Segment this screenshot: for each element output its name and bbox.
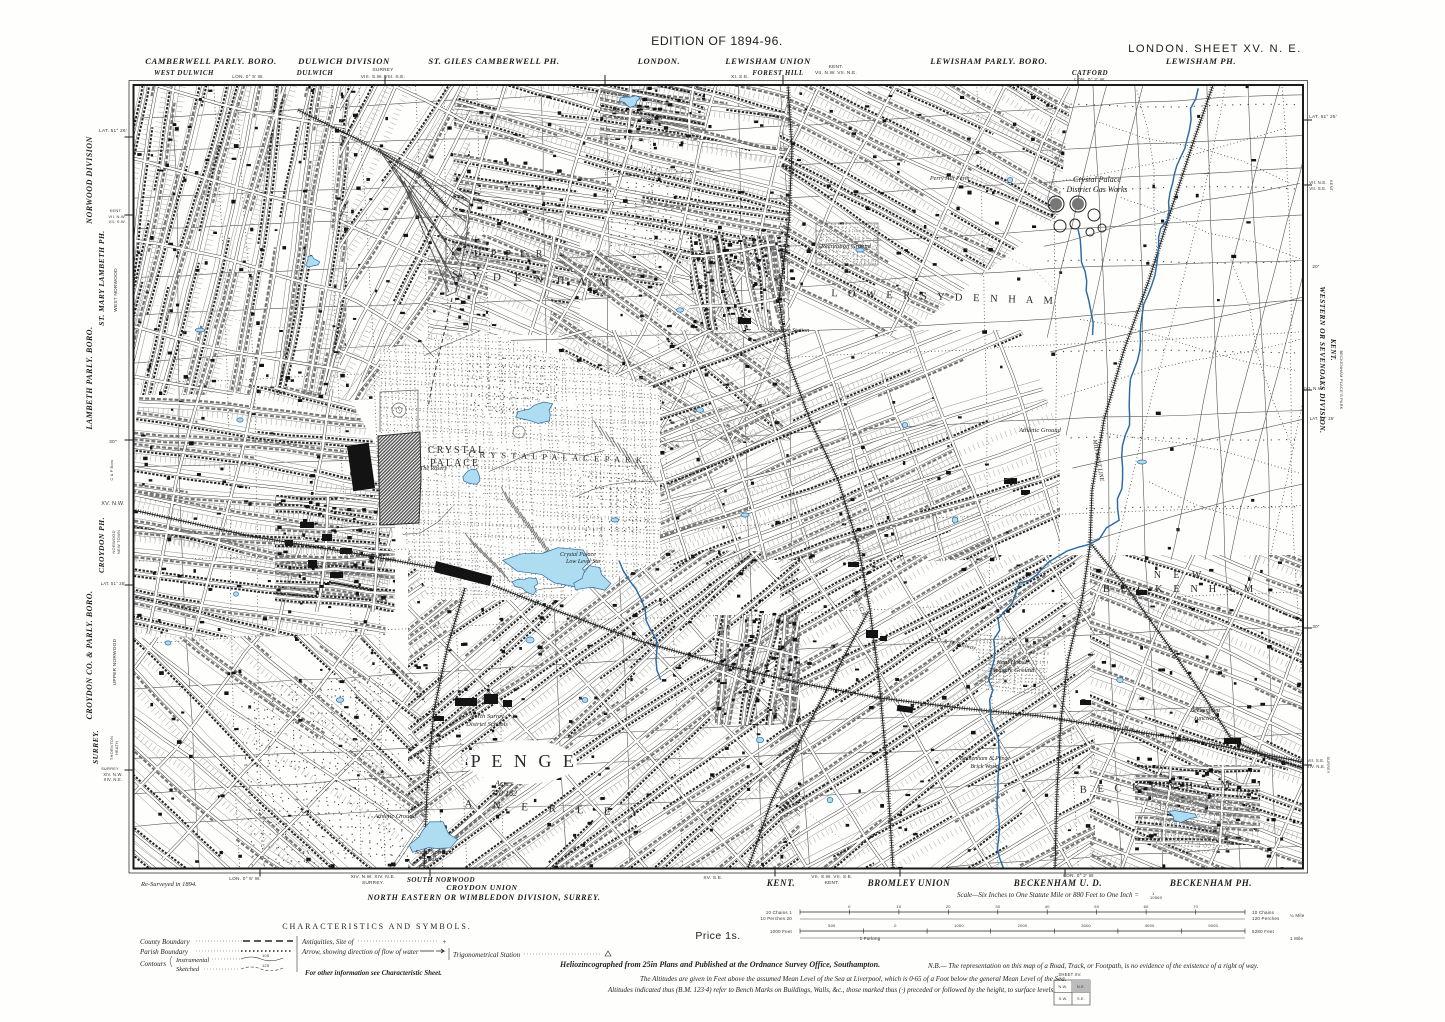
svg-text:LON. 0° 5′ W.: LON. 0° 5′ W. [229,876,261,882]
svg-text:Low Level Sta: Low Level Sta [565,559,600,565]
svg-text:District Gas Works: District Gas Works [1065,185,1127,194]
svg-text:U P P E R: U P P E R [474,249,546,260]
svg-text:NEW TOWN: NEW TOWN [116,530,121,554]
svg-text:10 Chains: 10 Chains [1252,910,1275,915]
svg-text:30″: 30″ [109,439,117,445]
svg-text:Athletic Ground: Athletic Ground [373,813,417,820]
svg-text:South Norwood: South Norwood [415,850,454,856]
svg-text:HEATH: HEATH [114,741,119,755]
svg-text:LEWISHAM UNION: LEWISHAM UNION [724,56,811,66]
svg-text:Antiquities, Site of: Antiquities, Site of [301,938,355,946]
svg-text:KENT.: KENT. [1329,180,1334,192]
svg-text:XIV. N.W. XIV. N.E.: XIV. N.W. XIV. N.E. [351,874,396,880]
svg-text:LEWISHAM PARLY. BORO.: LEWISHAM PARLY. BORO. [929,56,1048,66]
svg-text:P E N G E: P E N G E [471,751,578,771]
svg-text:30″: 30″ [1312,624,1319,629]
svg-text:For other information see: For other information see Characteristic… [305,969,442,977]
svg-text:XI. S.E.: XI. S.E. [731,74,749,80]
svg-text:LON. 0° 2′ W.: LON. 0° 2′ W. [1074,77,1106,83]
svg-text:SURREY: SURREY [1326,756,1330,773]
svg-text:Wood Ho: Wood Ho [640,116,662,122]
svg-text:DULWICH: DULWICH [296,69,334,77]
svg-text:2000: 2000 [1018,923,1028,928]
svg-text:Athletic Ground: Athletic Ground [1018,427,1062,434]
svg-text:KENT.: KENT. [1329,338,1337,361]
svg-text:0: 0 [848,904,851,909]
svg-text:LAT. 51° 26′: LAT. 51° 26′ [101,581,126,586]
svg-text:Instrumental: Instrumental [175,957,209,964]
svg-text:N E W: N E W [1154,570,1207,581]
svg-text:LON. 0° 5′ W.: LON. 0° 5′ W. [232,74,264,80]
svg-text:EDITION OF 1894-96.: EDITION OF 1894-96. [651,34,783,48]
svg-text:ST. GILES CAMBERWELL PH.: ST. GILES CAMBERWELL PH. [428,56,559,66]
svg-text:Re-Surveyed in 1894.: Re-Surveyed in 1894. [140,881,197,888]
svg-text:XV. N.W.: XV. N.W. [101,501,125,507]
svg-text:Crystal Palace: Crystal Palace [1073,175,1121,184]
svg-text:B E C K E N H A M: B E C K E N H A M [1103,584,1257,595]
svg-text:1 Furlong: 1 Furlong [860,936,881,941]
svg-text:40: 40 [1045,904,1050,909]
svg-text:100: 100 [262,953,270,958]
svg-text:CAMBERWELL PARLY. BORO.: CAMBERWELL PARLY. BORO. [145,56,277,66]
svg-text:SURREY: SURREY [101,766,119,771]
svg-text:Crystal Palace: Crystal Palace [560,552,596,558]
svg-text:Scale—Six Inches to One Statut: Scale—Six Inches to One Statute Mile or … [957,891,1139,899]
svg-text:BECKENHAM PH.: BECKENHAM PH. [1169,878,1252,888]
svg-text:WEST NORWOOD: WEST NORWOOD [113,268,119,312]
svg-text:Heliozincographed from 25in Pl: Heliozincographed from 25in Plans and Pu… [559,960,880,969]
svg-text:0: 0 [894,923,897,928]
svg-text:Kent House: Kent House [996,659,1028,666]
svg-text:VII. S.W. VII. S.E.: VII. S.W. VII. S.E. [811,874,852,880]
svg-text:Parish Boundary: Parish Boundary [139,948,189,956]
svg-text:BECKENHAM U. D.: BECKENHAM U. D. [1013,878,1103,888]
svg-text:LONDON. SHEET XV. N. E.: LONDON. SHEET XV. N. E. [1128,43,1302,55]
svg-text:NORWOOD DIVISION: NORWOOD DIVISION [85,135,94,224]
svg-text:KENT.: KENT. [110,208,122,213]
svg-text:Perry Hill Farm: Perry Hill Farm [929,176,970,182]
svg-text:VII. S.E.: VII. S.E. [1309,186,1326,191]
svg-text:4000: 4000 [1145,923,1155,928]
svg-text:N.B.— The representation on th: N.B.— The representation on this map of … [927,962,1259,970]
svg-text:VII. N.W. VII. N.E.: VII. N.W. VII. N.E. [815,70,857,76]
svg-text:10 Perches 20: 10 Perches 20 [760,916,792,921]
svg-text:NORTH EASTERN OR WIMBLEDON: NORTH EASTERN OR WIMBLEDON DIVISION, SUR… [366,893,600,902]
svg-text:VIII. S.W. VIII. S.E.: VIII. S.W. VIII. S.E. [361,74,405,80]
svg-text:120 Perches: 120 Perches [1252,916,1280,921]
svg-text:C & P Boro: C & P Boro [110,460,114,481]
svg-text:Brick Works: Brick Works [970,764,1000,770]
svg-text:LEWISHAM PH.: LEWISHAM PH. [1165,56,1236,66]
svg-text:Sydenham Station: Sydenham Station [766,328,809,334]
svg-text:1000: 1000 [954,923,964,928]
svg-text:Contours: Contours [140,960,166,968]
svg-text:WESTERN OR SEVENOAKS DIVISI: WESTERN OR SEVENOAKS DIVISION. [1318,286,1327,433]
svg-text:WEST DULWICH: WEST DULWICH [154,69,214,77]
svg-text:XV. S.E.: XV. S.E. [703,875,722,881]
svg-text:Beckenham: Beckenham [1190,707,1220,714]
svg-text:LONDON.: LONDON. [637,56,681,66]
svg-text:KENT.: KENT. [829,64,844,70]
svg-text:North Surrey: North Surrey [469,713,504,720]
svg-text:VII. S.W.: VII. S.W. [109,219,126,224]
svg-text:BROMLEY UNION: BROMLEY UNION [867,878,951,888]
svg-text:XVI. N.W.: XVI. N.W. [1302,386,1323,391]
svg-text:500: 500 [828,923,836,928]
svg-text:5280 Feet: 5280 Feet [1252,929,1275,934]
svg-text:The Rosery: The Rosery [420,466,447,472]
svg-text:1 Mile: 1 Mile [1290,936,1304,941]
svg-text:Lake: Lake [427,857,440,863]
svg-text:20: 20 [946,904,951,909]
svg-text:SURREY.: SURREY. [91,730,100,764]
svg-text:S.E.: S.E. [1077,997,1085,1001]
svg-text:District Schools: District Schools [465,721,508,728]
svg-text:CATFORD: CATFORD [1072,69,1108,77]
svg-text:Recreation Ground: Recreation Ground [820,243,872,250]
svg-text:ST. MARY LAMBETH PH.: ST. MARY LAMBETH PH. [97,230,106,325]
svg-text:Arrow, showing direction of fl: Arrow, showing direction of flow of wate… [301,948,419,956]
svg-text:VII. N.E.: VII. N.E. [1309,180,1326,185]
svg-text:SURREY: SURREY [372,67,394,73]
svg-text:Altitudes indicated thus (B.M.: Altitudes indicated thus (B.M. 123·4) re… [607,986,1055,994]
svg-text:CROYDON UNION: CROYDON UNION [446,883,517,892]
svg-text:70: 70 [1193,904,1198,909]
svg-text:Pleasure Ground: Pleasure Ground [989,667,1035,674]
svg-text:The Altitudes are given in Fee: The Altitudes are given in Feet above th… [640,975,1067,983]
svg-text:10: 10 [896,904,901,909]
svg-text:3000: 3000 [1081,923,1091,928]
svg-text:UPPER NORWOOD: UPPER NORWOOD [112,638,118,685]
svg-text:N.W.: N.W. [1058,985,1067,989]
svg-text:S.W.: S.W. [1059,997,1068,1001]
svg-text:VII. S.E.: VII. S.E. [1307,758,1324,763]
svg-text:5000: 5000 [1208,923,1218,928]
svg-text:CROYDON CO. & PARLY. BORO.: CROYDON CO. & PARLY. BORO. [85,590,94,719]
svg-text:XIV. N.E.: XIV. N.E. [1307,764,1326,769]
svg-text:20″: 20″ [1312,264,1319,269]
svg-text:FOREST HILL: FOREST HILL [752,69,803,77]
svg-text:SURREY.: SURREY. [362,880,384,886]
svg-text:10 Chains 1: 10 Chains 1 [766,910,793,915]
svg-text:50: 50 [1094,904,1099,909]
svg-text:CRYSTAL: CRYSTAL [428,445,486,456]
svg-text:KENT.: KENT. [766,878,795,888]
svg-text:KENT.: KENT. [825,880,840,886]
svg-text:Junction: Junction [1194,715,1216,722]
svg-text:XIV. N.E.: XIV. N.E. [104,777,123,782]
svg-text:125: 125 [262,963,270,968]
svg-text:SHEET XV.: SHEET XV. [1058,972,1081,977]
svg-text:60: 60 [1144,904,1149,909]
svg-text:770·162: 770·162 [491,789,517,798]
svg-text:CHARACTERISTICS AND SYMBOLS.: CHARACTERISTICS AND SYMBOLS. [282,922,472,931]
svg-text:10560: 10560 [1150,895,1163,900]
svg-text:Acres: Acres [494,779,513,788]
svg-text:LAT. 51° 25′: LAT. 51° 25′ [1309,114,1337,120]
svg-text:LAT. 51° 25′: LAT. 51° 25′ [1310,416,1335,421]
svg-text:Price 1s.: Price 1s. [695,930,740,942]
svg-text:BECKENHAM PLACE'S PARK: BECKENHAM PLACE'S PARK [1339,350,1344,409]
svg-text:Sketched: Sketched [176,966,200,973]
svg-text:¼ Mile: ¼ Mile [1290,913,1305,918]
svg-text:Beckenham & Penge: Beckenham & Penge [960,756,1011,762]
svg-text:DULWICH DIVISION: DULWICH DIVISION [297,56,390,66]
svg-text:County Boundary: County Boundary [140,938,190,946]
svg-text:30: 30 [995,904,1000,909]
svg-text:Trigonometrical Station: Trigonometrical Station [453,951,521,959]
svg-text:+: + [442,938,447,946]
svg-text:LAT. 51° 26′: LAT. 51° 26′ [99,128,127,134]
svg-text:CROYDON PH.: CROYDON PH. [97,517,106,573]
svg-text:N.E.: N.E. [1077,985,1085,989]
svg-text:LAMBETH PARLY. BORO.: LAMBETH PARLY. BORO. [85,326,94,430]
svg-text:1000 Feet: 1000 Feet [770,929,793,934]
